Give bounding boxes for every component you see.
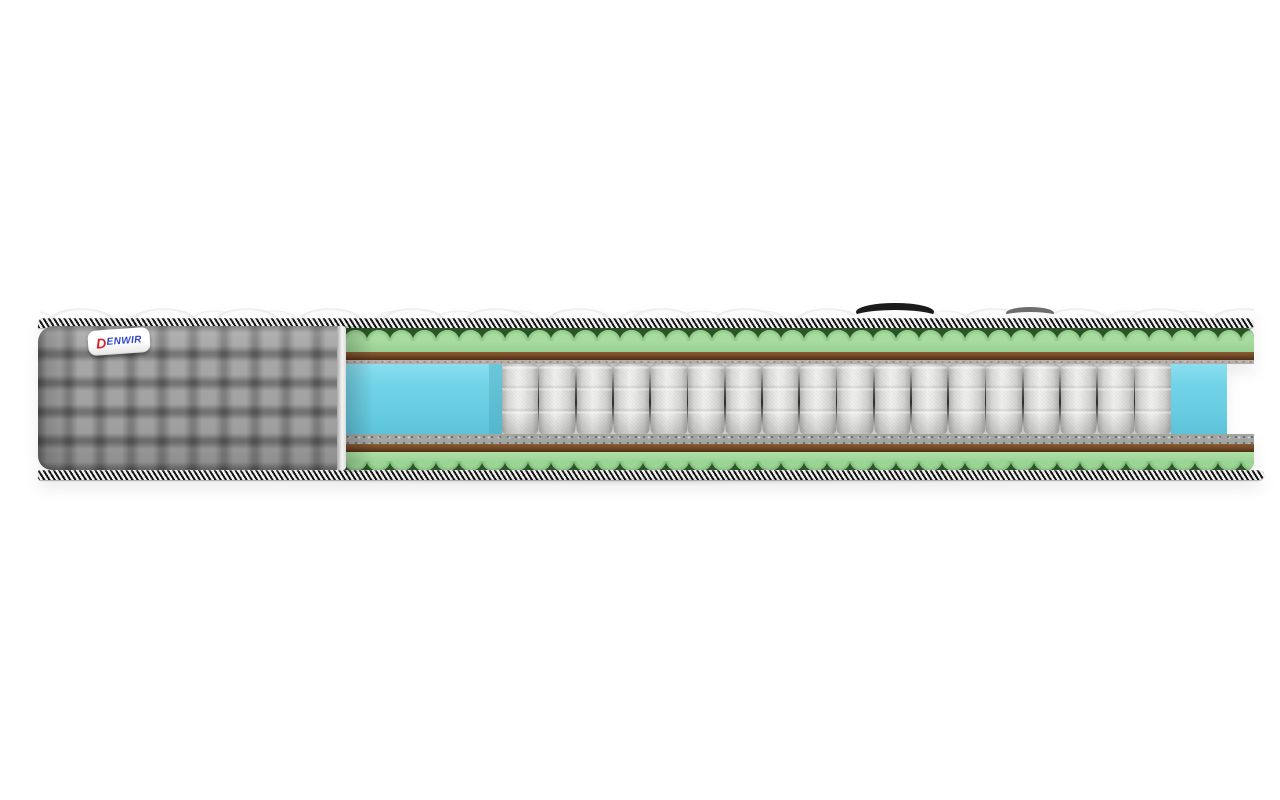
side-support-foam-right: [1171, 364, 1227, 434]
pocket-spring: [1098, 364, 1134, 434]
felt-layer-bottom: [344, 434, 1254, 444]
pocket-spring: [986, 364, 1022, 434]
green-foam-bottom: [344, 452, 1254, 461]
ground-shadow: [44, 478, 1254, 488]
side-support-foam-left: [344, 364, 489, 434]
pocket-spring: [763, 364, 799, 434]
brand-name: ENWIR: [106, 335, 142, 347]
pocket-spring: [539, 364, 575, 434]
pocket-spring: [651, 364, 687, 434]
pocket-spring: [837, 364, 873, 434]
pocket-spring: [912, 364, 948, 434]
pocket-spring: [1024, 364, 1060, 434]
pocket-spring: [875, 364, 911, 434]
top-cover-edge: [40, 300, 1254, 320]
side-support-foam-left-face: [489, 364, 502, 434]
coir-layer-top: [344, 352, 1254, 360]
product-image-stage: DENWIR: [0, 0, 1280, 800]
pocket-spring: [688, 364, 724, 434]
fabric-cut-edge: [337, 326, 346, 470]
mattress: DENWIR: [38, 300, 1256, 480]
top-cover-quilting: [40, 300, 1254, 320]
pocket-spring: [614, 364, 650, 434]
egg-crate-foam-top: [344, 328, 1254, 341]
pocket-spring: [726, 364, 762, 434]
pocket-spring: [577, 364, 613, 434]
pocket-spring: [949, 364, 985, 434]
pocket-spring: [1135, 364, 1171, 434]
coir-layer-bottom: [344, 444, 1254, 452]
pocket-spring: [502, 364, 538, 434]
pocket-spring: [1061, 364, 1097, 434]
spring-row: [502, 364, 1171, 434]
green-foam-top: [344, 341, 1254, 352]
cross-section: [344, 326, 1254, 472]
quilted-side-panel: DENWIR: [38, 326, 340, 470]
top-layer-stack: [344, 328, 1254, 364]
bottom-layer-stack: [344, 434, 1254, 472]
spring-core: [344, 364, 1254, 434]
pocket-spring: [800, 364, 836, 434]
brand-label: DENWIR: [87, 327, 151, 356]
